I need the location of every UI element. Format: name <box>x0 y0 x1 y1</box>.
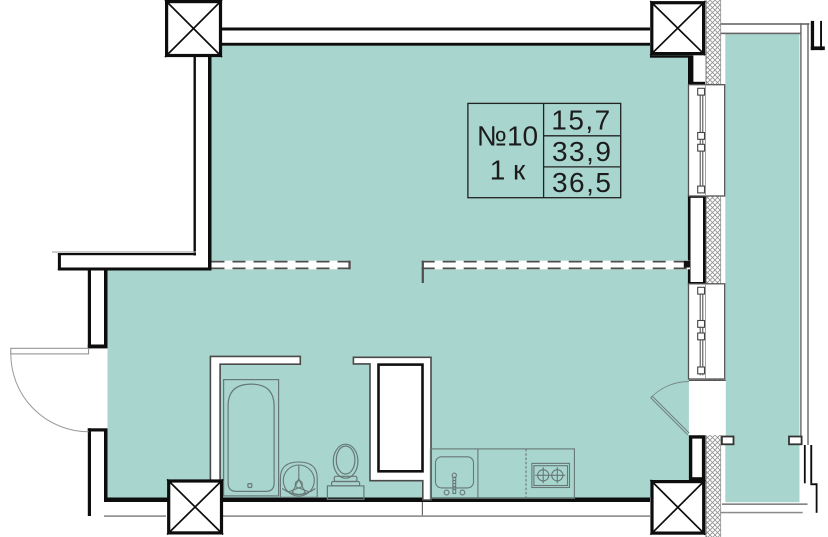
svg-text:33,9: 33,9 <box>552 136 613 167</box>
svg-text:36,5: 36,5 <box>552 167 613 198</box>
svg-text:15,7: 15,7 <box>551 104 612 135</box>
svg-text:№10: №10 <box>477 121 538 152</box>
svg-text:1 к: 1 к <box>490 155 526 186</box>
